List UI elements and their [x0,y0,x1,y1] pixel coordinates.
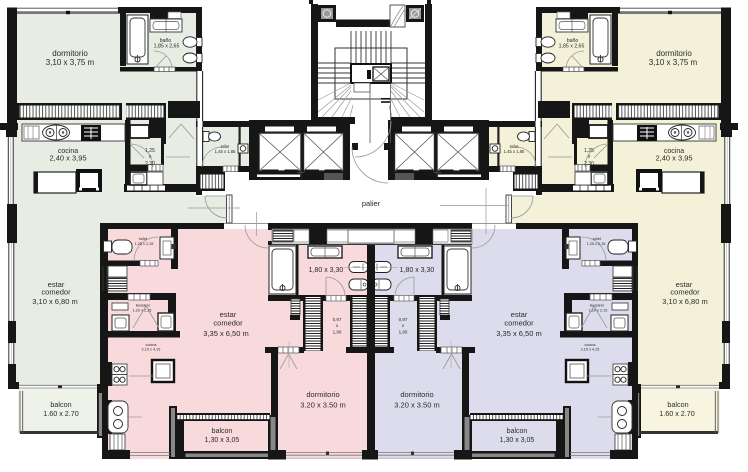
svg-text:dormitorio: dormitorio [400,390,433,399]
svg-text:1,30 x 3,05: 1,30 x 3,05 [500,437,535,444]
svg-text:1,30 x 3,05: 1,30 x 3,05 [205,437,240,444]
svg-text:3,10 x 3,75 m: 3,10 x 3,75 m [46,58,95,67]
svg-text:dormitorio: dormitorio [306,390,339,399]
svg-text:2,15 x 4,15: 2,15 x 4,15 [581,348,600,352]
svg-text:1,45 x 1,85: 1,45 x 1,85 [504,149,525,154]
svg-text:balcon: balcon [50,400,71,409]
svg-text:0,97: 0,97 [333,317,342,322]
svg-text:1,90: 1,90 [333,330,342,335]
svg-text:3,10 x 3,75 m: 3,10 x 3,75 m [649,58,698,67]
svg-text:1.60 x 2.70: 1.60 x 2.70 [43,409,79,418]
svg-text:1,80 x 3,30: 1,80 x 3,30 [309,267,344,274]
svg-text:balcon: balcon [212,428,233,435]
svg-text:dormitorio: dormitorio [52,49,88,58]
svg-text:toilet: toilet [593,237,602,241]
svg-text:1,80 x 3,30: 1,80 x 3,30 [400,267,435,274]
svg-text:balcon: balcon [667,400,688,409]
svg-text:comedor: comedor [41,288,71,297]
svg-text:dormitorio: dormitorio [656,49,692,58]
svg-text:3,35 x 6,50 m: 3,35 x 6,50 m [496,329,541,338]
svg-text:toilet: toilet [139,237,148,241]
svg-text:2,15 x 4,15: 2,15 x 4,15 [142,348,161,352]
svg-text:balcon: balcon [507,428,528,435]
svg-text:3.20 x 3.50 m: 3.20 x 3.50 m [300,401,345,410]
svg-text:1.60 x 2.70: 1.60 x 2.70 [659,409,695,418]
svg-text:1,90: 1,90 [399,330,408,335]
svg-text:3,10 x 6,80 m: 3,10 x 6,80 m [32,297,77,306]
svg-text:cocina: cocina [146,343,158,347]
svg-text:comedor: comedor [213,319,243,328]
svg-text:3,35 x 6,50 m: 3,35 x 6,50 m [203,329,248,338]
svg-text:1,45 x 1,85: 1,45 x 1,85 [215,149,236,154]
svg-text:3.20 x 3.50 m: 3.20 x 3.50 m [394,401,439,410]
svg-text:lavadero: lavadero [590,304,605,308]
svg-text:2,30: 2,30 [145,161,155,167]
svg-text:1,20 x 2,15: 1,20 x 2,15 [133,309,152,313]
svg-text:1,25 x 2,15: 1,25 x 2,15 [135,242,154,246]
svg-text:cocina: cocina [585,343,597,347]
svg-text:1,25 x 2,15: 1,25 x 2,15 [587,242,606,246]
svg-text:palier: palier [362,199,381,208]
svg-text:comedor: comedor [670,288,700,297]
svg-text:2,30: 2,30 [584,161,594,167]
svg-text:2,40 x 3,95: 2,40 x 3,95 [49,154,86,163]
svg-text:comedor: comedor [504,319,534,328]
svg-text:0,97: 0,97 [399,317,408,322]
svg-text:2,40 x 3,95: 2,40 x 3,95 [655,154,692,163]
svg-text:lavadero: lavadero [136,304,151,308]
svg-text:1,85 x 2,65: 1,85 x 2,65 [559,43,585,49]
svg-text:3,10 x 6,80 m: 3,10 x 6,80 m [662,297,707,306]
svg-text:1,20 x 2,15: 1,20 x 2,15 [589,309,608,313]
svg-text:1,85 x 2,65: 1,85 x 2,65 [154,43,180,49]
